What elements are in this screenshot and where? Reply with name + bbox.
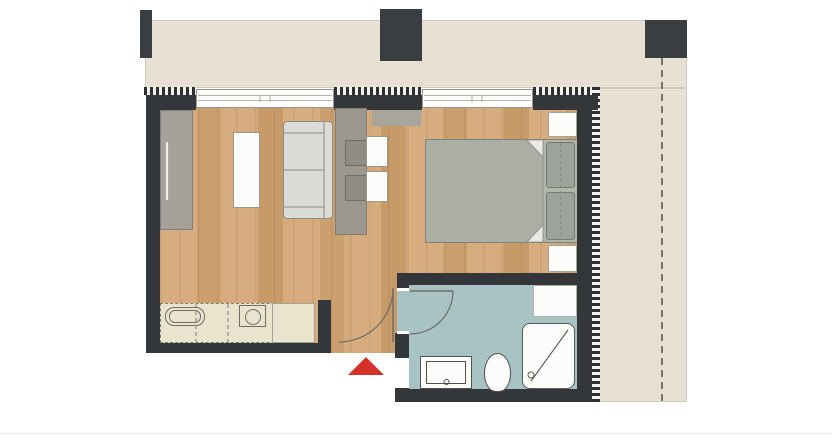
pillow-1 [546, 142, 575, 188]
window-1 [196, 89, 334, 108]
bathroom-cabinet [533, 285, 577, 317]
nightstand-top [548, 112, 577, 137]
shower-tray [522, 323, 575, 389]
hatch-top-left [144, 87, 196, 95]
partition-unit [335, 108, 367, 235]
page-rule [0, 433, 832, 434]
window-1-glazing-line [198, 95, 332, 96]
window-2-glazing-line [424, 95, 531, 96]
toilet [484, 353, 511, 392]
entrance-arrow [348, 357, 384, 375]
floor-plan-canvas [0, 0, 832, 441]
bathroom-door-jamb-bottom [397, 331, 409, 334]
kitchen-counter-end [272, 303, 315, 343]
column-1 [140, 10, 152, 58]
wall-kitchen-south [146, 343, 331, 353]
sofa [283, 121, 333, 219]
bathroom-doorway-floor [397, 291, 409, 332]
wardrobe [160, 110, 193, 230]
pillow-2 [546, 192, 575, 240]
bathroom-door-jamb-top [397, 288, 409, 291]
washbasin-inner [426, 361, 466, 384]
window-1-glazing-line [198, 100, 332, 101]
hatch-top-mid [334, 87, 422, 95]
wall-right [577, 95, 592, 402]
window-2 [422, 89, 533, 108]
sink-bowl [245, 309, 261, 325]
window-2-glazing-line [424, 100, 531, 101]
desk-table-1 [366, 136, 388, 167]
column-2 [380, 9, 422, 61]
desk-table-2 [366, 171, 388, 202]
column-3 [645, 20, 687, 58]
terrace-right [598, 88, 687, 402]
cooktop-inner [169, 310, 201, 323]
coffee-table [233, 132, 260, 208]
nightstand-bottom [548, 245, 577, 272]
wall-bath-north [397, 273, 578, 285]
wall-left [146, 95, 160, 353]
hatch-right [592, 87, 600, 402]
wall-cabinet [372, 110, 421, 126]
wall-entry-stub [318, 300, 331, 353]
hatch-top-right [533, 87, 599, 95]
